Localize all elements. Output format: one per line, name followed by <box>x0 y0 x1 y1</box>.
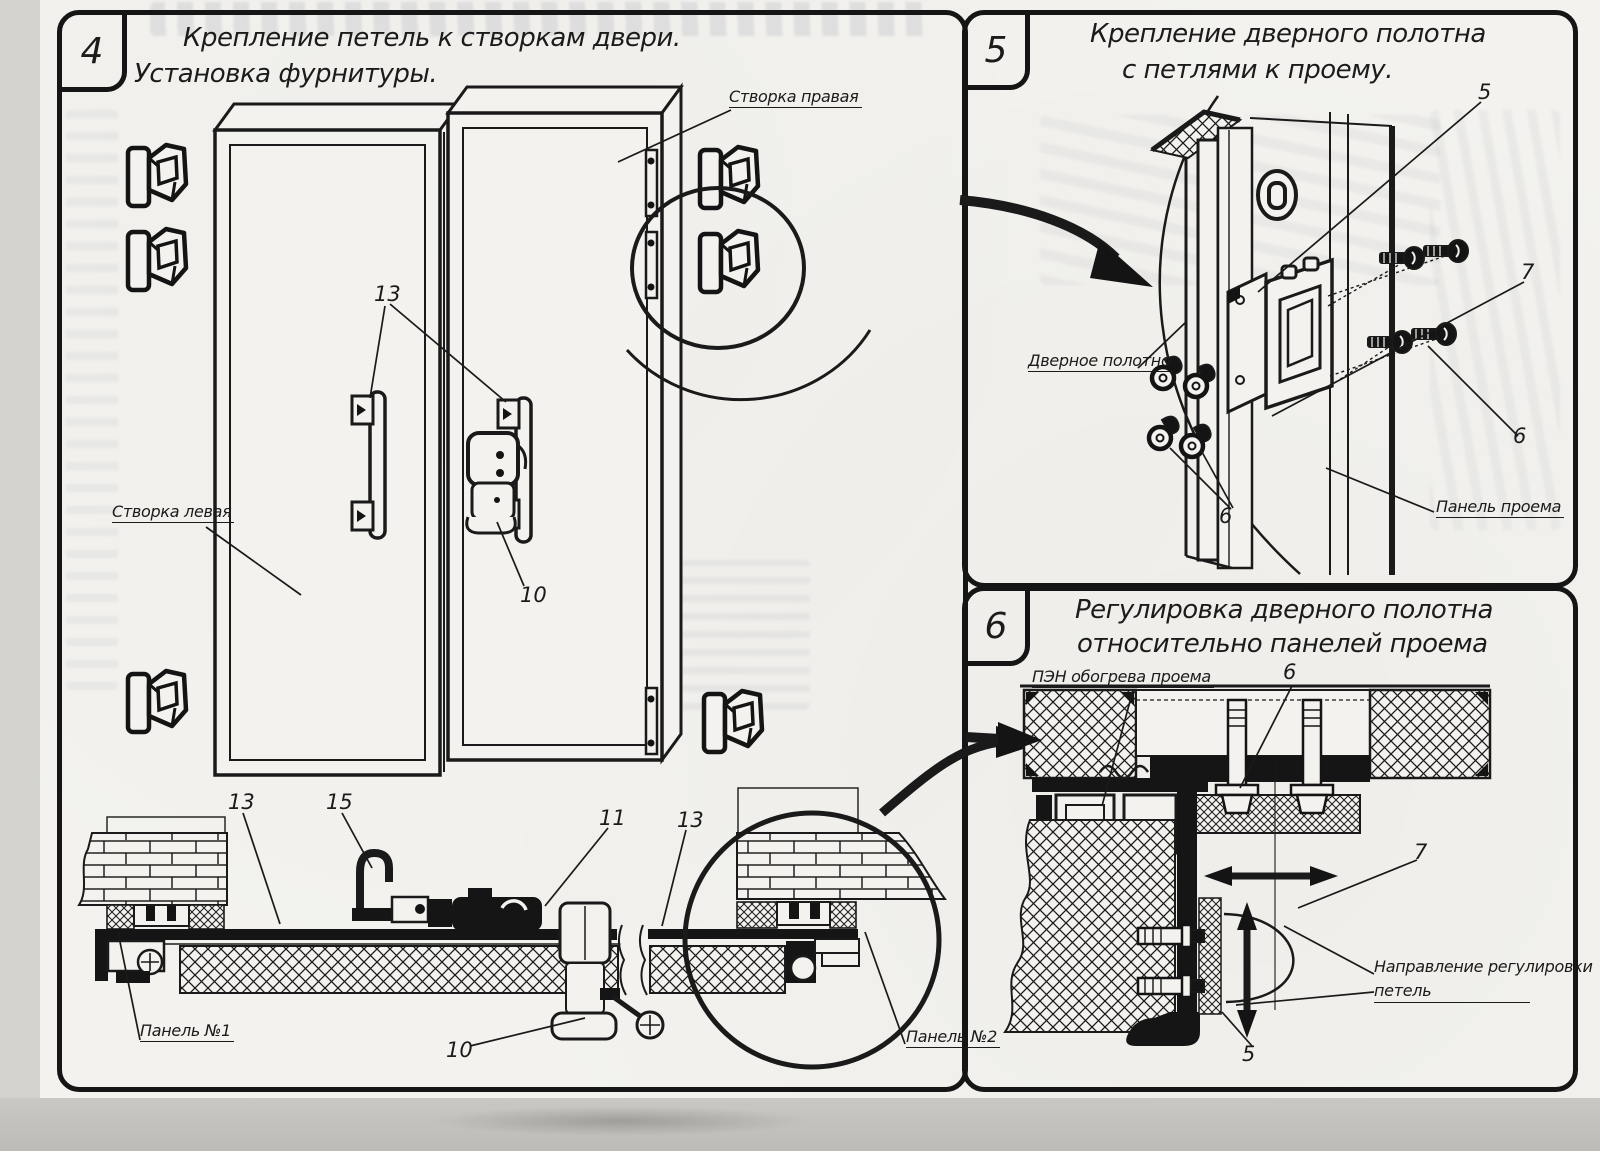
label-panel-2: Панель №2 <box>906 1028 1000 1048</box>
panel-6-title-line2: относительно панелей проема <box>1077 630 1488 659</box>
callout-6-bolts: 6 <box>1283 662 1296 683</box>
callout-15-hook: 15 <box>326 792 353 813</box>
header-hatch-right <box>1370 690 1490 778</box>
callout-7-edge: 7 <box>1414 842 1427 863</box>
callout-6-washers: 6 <box>1219 506 1232 527</box>
screw-icon <box>1380 247 1424 269</box>
scanner-smudge <box>430 1106 810 1136</box>
label-heater: ПЭН обогрева проема <box>1032 668 1214 688</box>
hinge-icon <box>128 145 186 206</box>
callout-13-section-right: 13 <box>677 810 704 831</box>
callout-13-section-left: 13 <box>228 792 255 813</box>
callout-13-handles: 13 <box>374 284 401 305</box>
hinge-bolt-icon <box>1138 975 1204 997</box>
callout-6-screws: 6 <box>1513 426 1526 447</box>
door-hole <box>1258 171 1296 219</box>
callout-11-clamp: 11 <box>599 808 626 829</box>
hook-fitting <box>352 853 452 927</box>
callout-10-section: 10 <box>446 1040 473 1061</box>
hinge-bolt-icon <box>1138 925 1204 947</box>
loop-leader <box>1224 914 1293 1002</box>
clamp-fitting <box>452 888 542 931</box>
callout-7-hinge: 7 <box>1521 262 1534 283</box>
callout-10-latch: 10 <box>520 585 547 606</box>
panel-4-title-line1: Крепление петель к створкам двери. <box>183 24 681 53</box>
hinge-icon <box>700 231 758 292</box>
label-panel-1: Панель №1 <box>140 1022 234 1042</box>
label-door-leaf: Дверное полотно <box>1028 352 1173 372</box>
hinge-icon <box>700 147 758 208</box>
screw-icon <box>1412 323 1456 345</box>
label-opening-panel: Панель проема <box>1436 498 1564 518</box>
label-direction-line2: петель <box>1374 982 1530 1003</box>
panel-4-title-line2: Установка фурнитуры. <box>134 60 437 89</box>
panel4-drawing <box>79 87 1044 1067</box>
door-leaf-left <box>215 104 459 775</box>
hinge-icon <box>128 671 186 732</box>
panel-5-title-line2: с петлями к проему. <box>1122 56 1393 85</box>
insulation-hatch <box>1005 820 1175 1032</box>
label-left-leaf: Створка левая <box>112 503 234 523</box>
panel-5-title-line1: Крепление дверного полотна <box>1090 20 1486 49</box>
panel-core-hatch <box>180 946 618 993</box>
adjustment-arrows <box>1204 866 1338 1038</box>
technical-drawing <box>0 0 1600 1151</box>
flow-arrow-down <box>960 200 1153 287</box>
label-right-leaf: Створка правая <box>729 88 862 108</box>
brick-wall-left <box>79 833 227 905</box>
hinge-icon <box>704 691 762 752</box>
callout-5-hinge-p6: 5 <box>1242 1044 1255 1065</box>
hinge-icon <box>128 229 186 290</box>
screw-icon <box>1424 240 1468 262</box>
label-direction-line1: Направление регулировки <box>1374 958 1593 976</box>
header-hatch-left <box>1024 690 1136 778</box>
panel-6-title-line1: Регулировка дверного полотна <box>1075 596 1493 625</box>
callout-5-hinge: 5 <box>1478 82 1491 103</box>
